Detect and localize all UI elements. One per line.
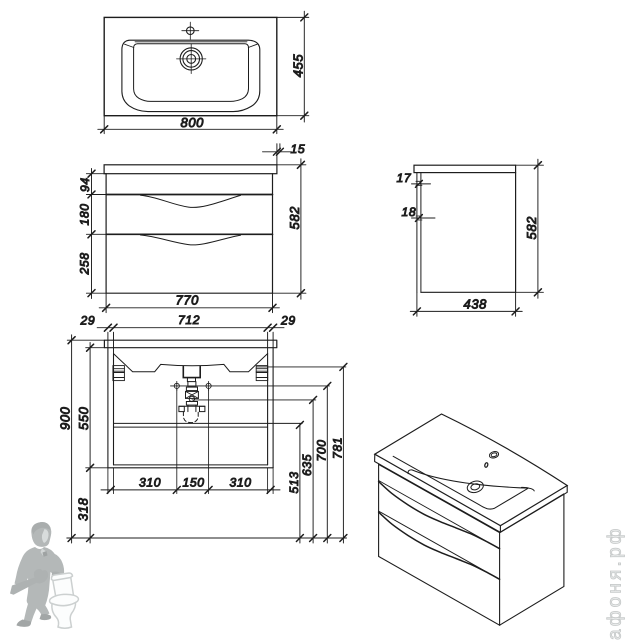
svg-text:18: 18 bbox=[402, 205, 417, 219]
svg-text:17: 17 bbox=[397, 171, 412, 185]
svg-text:318: 318 bbox=[76, 497, 91, 521]
svg-text:310: 310 bbox=[230, 476, 252, 490]
svg-text:712: 712 bbox=[178, 313, 200, 327]
svg-text:582: 582 bbox=[524, 216, 539, 240]
svg-text:29: 29 bbox=[80, 314, 96, 328]
svg-text:афоня.рф: афоня.рф bbox=[605, 525, 626, 640]
svg-text:635: 635 bbox=[300, 454, 314, 476]
svg-text:800: 800 bbox=[181, 115, 205, 130]
svg-text:513: 513 bbox=[287, 471, 301, 493]
svg-text:438: 438 bbox=[464, 296, 488, 311]
svg-text:258: 258 bbox=[78, 252, 92, 275]
svg-text:700: 700 bbox=[314, 439, 328, 461]
svg-text:781: 781 bbox=[330, 437, 344, 459]
svg-text:29: 29 bbox=[280, 314, 296, 328]
svg-text:180: 180 bbox=[78, 203, 92, 225]
svg-text:582: 582 bbox=[287, 206, 302, 230]
svg-text:150: 150 bbox=[183, 476, 205, 490]
svg-text:900: 900 bbox=[58, 406, 73, 430]
svg-text:770: 770 bbox=[176, 293, 200, 308]
svg-text:310: 310 bbox=[139, 476, 161, 490]
svg-text:455: 455 bbox=[291, 54, 306, 78]
svg-text:15: 15 bbox=[291, 142, 306, 156]
svg-text:550: 550 bbox=[76, 406, 91, 430]
svg-text:94: 94 bbox=[78, 177, 92, 192]
